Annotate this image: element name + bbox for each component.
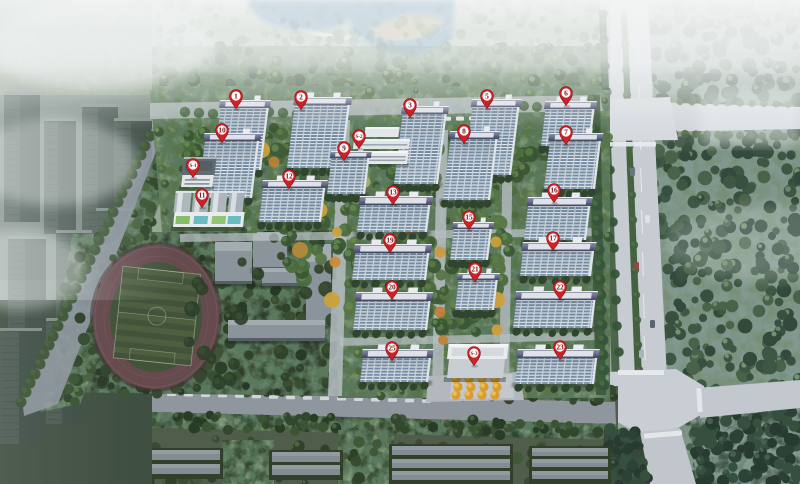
svg-text:1: 1 bbox=[234, 92, 238, 101]
svg-text:15: 15 bbox=[465, 213, 473, 222]
svg-text:16: 16 bbox=[550, 186, 558, 195]
svg-text:25: 25 bbox=[388, 344, 396, 353]
svg-text:12: 12 bbox=[285, 172, 293, 181]
svg-text:8: 8 bbox=[462, 127, 466, 136]
svg-text:20: 20 bbox=[388, 283, 396, 292]
svg-text:2: 2 bbox=[299, 93, 303, 102]
svg-text:7: 7 bbox=[564, 128, 568, 137]
svg-text:S-2: S-2 bbox=[356, 135, 363, 140]
svg-text:9: 9 bbox=[342, 144, 346, 153]
svg-text:19: 19 bbox=[386, 236, 394, 245]
svg-text:11: 11 bbox=[199, 191, 206, 200]
svg-text:22: 22 bbox=[556, 283, 564, 292]
svg-text:3: 3 bbox=[408, 101, 412, 110]
svg-text:13: 13 bbox=[389, 188, 397, 197]
svg-text:6: 6 bbox=[564, 89, 568, 98]
svg-text:10: 10 bbox=[218, 126, 226, 135]
svg-text:17: 17 bbox=[549, 234, 557, 243]
svg-text:23: 23 bbox=[556, 343, 564, 352]
svg-text:5: 5 bbox=[485, 92, 489, 101]
svg-text:21: 21 bbox=[471, 265, 479, 274]
svg-text:S-3: S-3 bbox=[471, 352, 478, 357]
svg-text:S-1: S-1 bbox=[190, 164, 197, 169]
